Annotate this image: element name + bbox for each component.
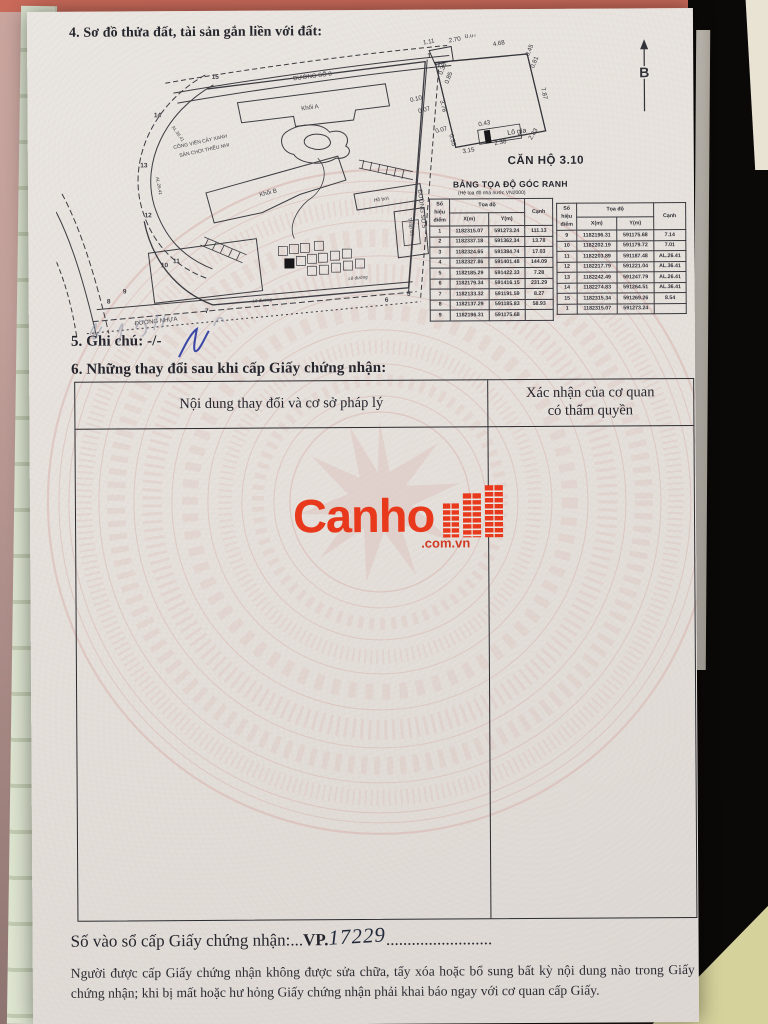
footer-note: Người được cấp Giấy chứng nhận không đượ… (71, 960, 695, 1005)
svg-text:2.83: 2.83 (527, 127, 540, 141)
serial-label: Số vào sổ cấp Giấy chứng nhận: (71, 930, 291, 950)
north-arrow-icon: B (639, 39, 650, 111)
svg-text:13: 13 (140, 162, 148, 169)
coord-row: 81182137.29591185.8358.93 (430, 299, 553, 310)
changes-col1-header: Nội dung thay đổi và cơ sở pháp lý (75, 393, 487, 414)
section5-label: 5. Ghi chú: -/- (71, 333, 162, 351)
map-bldg-b-label: Khối B (259, 188, 278, 198)
col-y: Y(m) (617, 216, 654, 230)
col-coords: Tọa độ (577, 203, 654, 217)
coord-table-right: Số hiệu điểm Tọa độ Cạnh X(m) Y(m) 91182… (556, 202, 687, 315)
svg-text:6: 6 (385, 297, 389, 304)
coord-table-left: Số hiệu điểm Tọa độ Cạnh X(m) Y(m) 11182… (429, 198, 554, 321)
coord-row: 21182337.18591362.3413.78 (430, 236, 553, 247)
svg-text:11: 11 (173, 258, 180, 265)
coord-row: 41182327.86591401.48144.09 (430, 257, 553, 268)
coord-row: 101182202.19591179.727.01 (557, 240, 686, 251)
svg-text:10: 10 (161, 262, 169, 269)
coord-row: 131182242.49591247.79AL.26.41 (557, 272, 686, 283)
handwritten-pen-mark (169, 323, 219, 363)
col-point: Số hiệu điểm (430, 199, 450, 227)
balcony-label: Lô gia (507, 127, 527, 137)
coord-table-right-body: 91182196.31591175.687.14101182202.195911… (557, 230, 687, 315)
canho-buildings-icon (441, 483, 505, 539)
col-x: X(m) (577, 217, 617, 231)
serial-dots-before: ... (290, 930, 303, 949)
map-bldg-a-label: Khối A (301, 104, 319, 112)
svg-text:4.68: 4.68 (492, 39, 506, 48)
svg-text:0.43: 0.43 (478, 119, 492, 128)
coord-row: 121182217.79591221.04AL.36.41 (557, 261, 686, 272)
coord-row: 31182324.65591384.7417.03 (430, 247, 553, 258)
map-arc-label-2: AL.26.41 (155, 177, 163, 196)
changes-table-divider (487, 380, 492, 918)
serial-dots-after: ......................... (386, 929, 492, 949)
coord-row: 11182315.07591273.24 (557, 303, 686, 314)
svg-text:12: 12 (145, 212, 153, 219)
map-curb-label-1: Lề đường (348, 274, 368, 281)
svg-text:0.55: 0.55 (447, 133, 457, 147)
map-road-right-label: ĐƯỜNG SỐ 5 (416, 189, 427, 229)
col-edge: Cạnh (525, 198, 553, 226)
svg-text:8: 8 (107, 299, 111, 306)
svg-text:15: 15 (212, 74, 220, 81)
map-boundary-point-numbers: 15 14 13 12 11 10 9 8 7 6 5 1 (105, 53, 433, 316)
coord-row: 71182133.32591191.598.27 (430, 289, 553, 300)
coord-table-left-body: 11182315.07591273.24111.1321182337.18591… (430, 226, 554, 321)
coord-row: 11182315.07591273.24111.13 (430, 226, 553, 237)
col-coords: Tọa độ (450, 199, 525, 213)
col-x: X(m) (450, 212, 489, 226)
svg-text:3.78: 3.78 (438, 99, 448, 113)
canho-watermark: Canho .com.vn (293, 483, 508, 559)
changes-table-header-rule (75, 425, 693, 430)
svg-text:5: 5 (407, 291, 411, 298)
map-arc-label-1: AL.36.41 (171, 125, 186, 143)
coord-row: 141182274.83591264.51AL.36.41 (557, 282, 686, 293)
photo-background: 4. Sơ đồ thửa đất, tài sản gắn liền với … (0, 0, 768, 1024)
certificate-page: 4. Sơ đồ thửa đất, tài sản gắn liền với … (27, 8, 699, 1024)
coord-row: 91182196.31591175.68 (430, 309, 553, 320)
svg-text:0.10: 0.10 (409, 94, 423, 104)
subject-unit-marker (284, 258, 294, 268)
serial-handwritten-number: 17229 (328, 922, 387, 950)
section6-title: 6. Những thay đổi sau khi cấp Giấy chứng… (71, 360, 386, 379)
svg-text:9: 9 (123, 288, 127, 295)
coord-table-title: BẢNG TỌA ĐỘ GÓC RANH (453, 179, 568, 190)
col-point: Số hiệu điểm (557, 203, 577, 231)
coord-row: 91182196.31591175.687.14 (557, 230, 686, 241)
changes-table: Nội dung thay đổi và cơ sở pháp lý Xác n… (74, 378, 697, 922)
coord-row: 111182203.89591187.48AL.26.41 (557, 251, 686, 262)
svg-text:0.07: 0.07 (464, 33, 478, 40)
col-edge: Cạnh (654, 203, 686, 231)
map-curb-label-2: Lề đường (252, 297, 272, 304)
svg-text:0.07: 0.07 (417, 105, 431, 115)
serial-prefix: VP. (303, 930, 328, 949)
map-pool-label: Hồ bơi (373, 196, 389, 204)
coord-table-subtitle: (Hệ tọa độ nhà nước VN2000) (458, 190, 526, 196)
coord-row: 61182179.34591416.15231.29 (430, 278, 553, 289)
svg-text:0.81: 0.81 (529, 55, 540, 69)
svg-text:7.87: 7.87 (539, 87, 549, 101)
svg-text:0.07: 0.07 (435, 125, 449, 135)
svg-text:3.15: 3.15 (462, 146, 476, 155)
north-label: B (639, 64, 649, 80)
col-y: Y(m) (489, 212, 525, 226)
serial-line: Số vào sổ cấp Giấy chứng nhận:...VP.1722… (71, 925, 493, 953)
coord-row: 151182315.34591269.268.54 (557, 293, 686, 304)
svg-text:0.45: 0.45 (524, 43, 535, 57)
section4-title: 4. Sơ đồ thửa đất, tài sản gắn liền với … (69, 24, 322, 42)
svg-text:1.11: 1.11 (423, 38, 436, 47)
svg-text:2.38: 2.38 (494, 138, 508, 147)
unit-title: CĂN HỘ 3.10 (476, 154, 616, 167)
svg-text:2.70: 2.70 (448, 35, 462, 44)
canho-logo-text: Canho (293, 492, 435, 540)
coord-row: 51182185.29591422.337.28 (430, 268, 553, 279)
changes-col2-header: Xác nhận của cơ quan có thẩm quyền (487, 383, 693, 421)
svg-text:14: 14 (154, 112, 162, 119)
